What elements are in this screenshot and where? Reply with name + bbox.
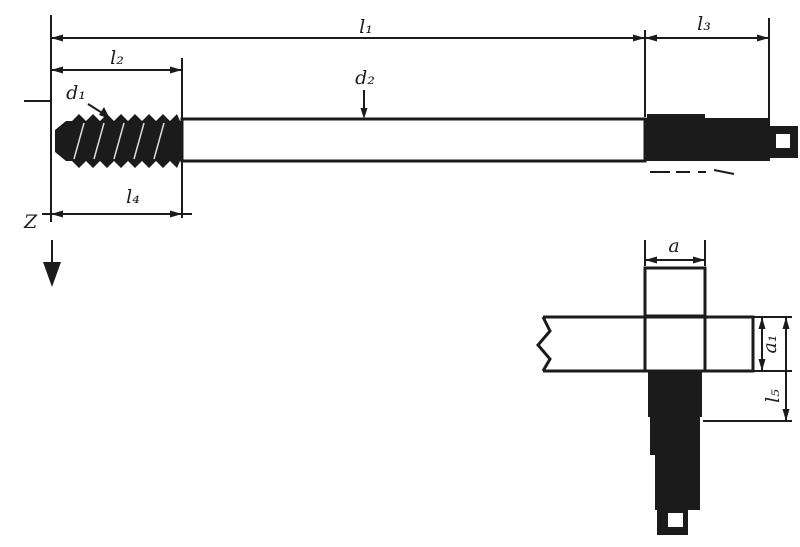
label-shank-diameter: d₂ [355, 67, 375, 89]
dimension-thread-length: l₂ [51, 47, 182, 74]
label-overall-length: l₁ [359, 16, 373, 38]
main-view: l₁ l₃ l₂ l₄ d₁ d₂ [23, 13, 798, 287]
detail-view: a a₁ l₅ [538, 235, 792, 535]
dimension-front-length: l₄ [42, 186, 192, 218]
label-thread-diameter: d₁ [66, 82, 86, 104]
break-line [538, 317, 550, 371]
label-front-length: l₄ [126, 186, 140, 208]
label-detail-length: l₅ [762, 389, 784, 403]
tang-tip-square-face [668, 513, 683, 527]
label-view-arrow: Z [23, 211, 38, 233]
tang-segment [648, 371, 702, 417]
end-tip-square-face [776, 134, 790, 148]
tang-segment [655, 455, 700, 510]
thread-section [55, 114, 182, 168]
thread-crests-top [72, 114, 180, 121]
dimension-detail-length: l₅ [703, 317, 792, 421]
tang-segment [650, 417, 700, 455]
arrowhead [170, 211, 182, 218]
arrowhead [759, 317, 766, 329]
arrowhead [645, 257, 657, 264]
view-direction-marker: Z [23, 211, 61, 287]
center-dash-line [650, 170, 734, 174]
arrowhead [51, 211, 63, 218]
label-square-length: l₃ [697, 13, 711, 35]
callout-shank-diameter: d₂ [355, 67, 375, 119]
arrowhead [783, 409, 790, 421]
label-detail-side: a₁ [759, 335, 781, 354]
arrowhead [757, 35, 769, 42]
label-square-width: a [668, 235, 679, 257]
arrowhead [51, 35, 63, 42]
thread-crests-bottom [72, 161, 180, 168]
arrowhead [759, 359, 766, 371]
arrowhead [51, 67, 63, 74]
dash [714, 170, 734, 174]
arrowhead [170, 67, 182, 74]
arrowhead [633, 35, 645, 42]
label-thread-length: l₂ [110, 47, 124, 69]
callout-thread-diameter: d₁ [24, 82, 110, 119]
detail-horizontal-band [538, 317, 753, 371]
view-arrowhead [43, 262, 61, 287]
detail-lower-tang [648, 371, 702, 535]
arrowhead [693, 257, 705, 264]
shank-outline [182, 119, 645, 161]
arrowhead [783, 317, 790, 329]
arrowhead [645, 35, 657, 42]
dimension-overall-length: l₁ l₃ [51, 13, 769, 42]
dimension-square-width: a [645, 235, 705, 266]
band-outline [543, 317, 753, 371]
technical-drawing-canvas: l₁ l₃ l₂ l₄ d₁ d₂ [0, 0, 800, 547]
tap-dimension-drawing: l₁ l₃ l₂ l₄ d₁ d₂ [0, 0, 800, 547]
arrowhead [361, 108, 368, 119]
square-end-body [645, 118, 770, 161]
detail-upper-rect [645, 268, 705, 316]
square-end-section [645, 114, 798, 174]
